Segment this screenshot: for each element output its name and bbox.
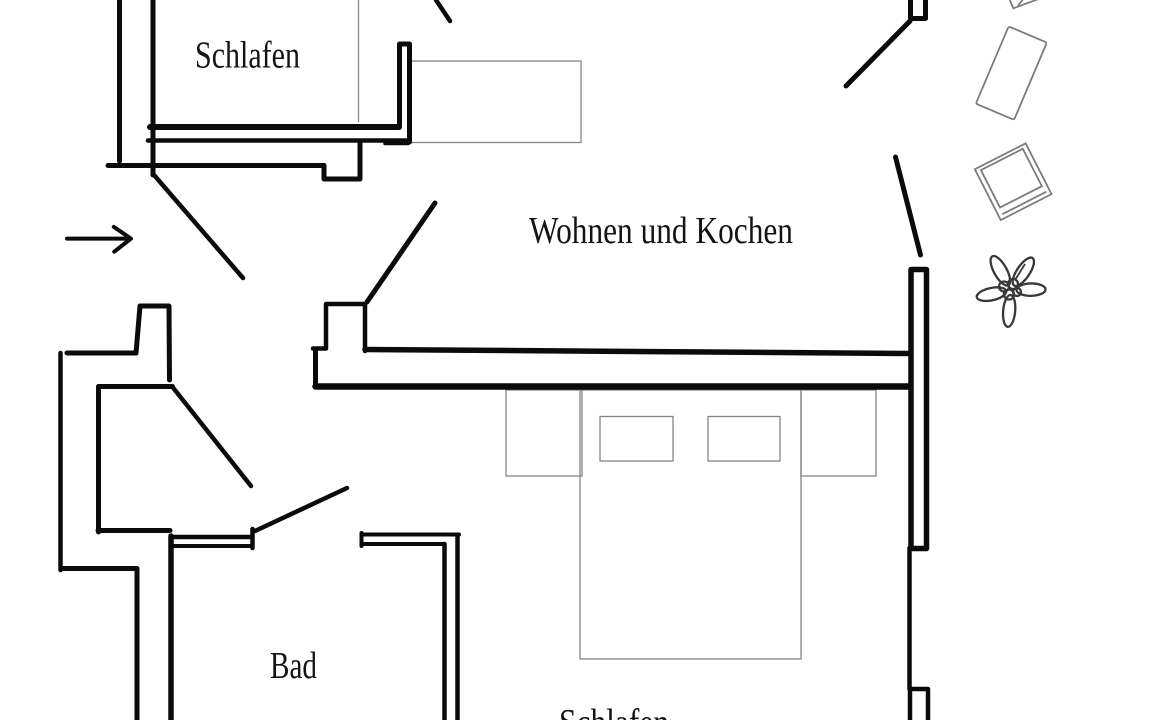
svg-text:Schlafen: Schlafen	[195, 35, 300, 77]
svg-text:Schlafen: Schlafen	[559, 702, 669, 720]
svg-text:Bad: Bad	[270, 645, 317, 687]
svg-text:Wohnen und Kochen: Wohnen und Kochen	[529, 210, 793, 252]
